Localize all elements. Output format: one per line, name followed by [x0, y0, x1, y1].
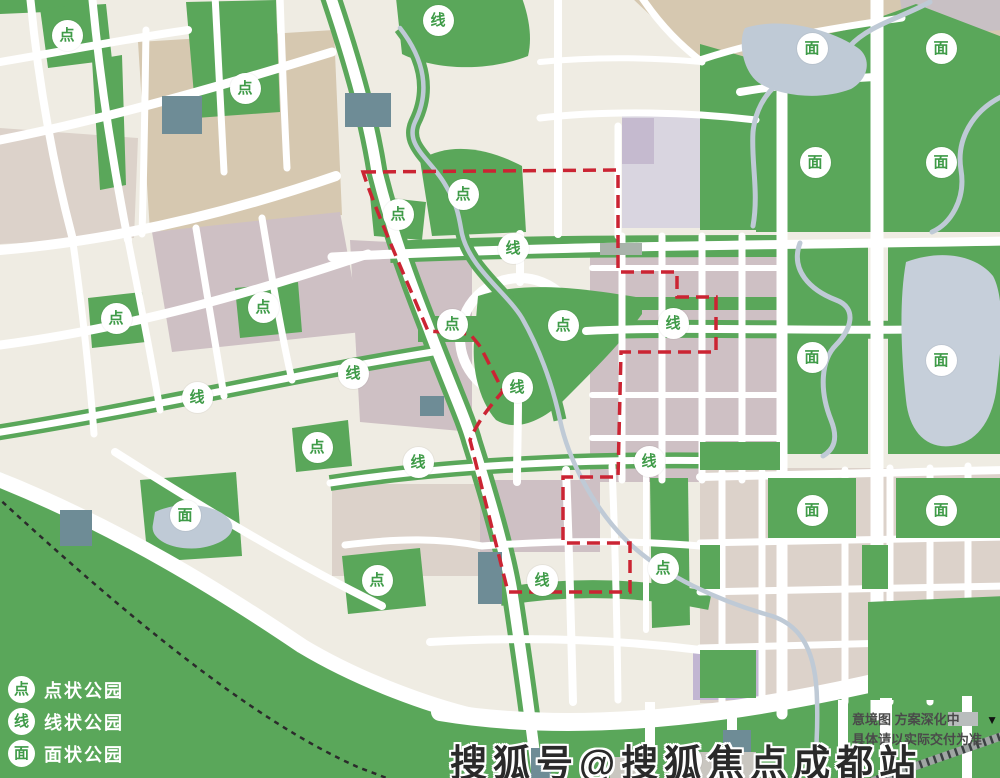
legend-item-area-park: 面 面状公园 — [8, 740, 124, 767]
legend-label: 面状公园 — [44, 741, 124, 767]
dot-park-symbol: 点 — [8, 676, 35, 703]
lake — [901, 255, 1000, 446]
line-park-symbol: 线 — [8, 708, 35, 735]
watermark: 搜狐号@搜狐焦点成都站 — [450, 733, 922, 778]
map-legend: 点 点状公园 线 线状公园 面 面状公园 — [8, 676, 124, 767]
dropdown-arrow-icon: ▼ — [986, 710, 998, 730]
map-canvas — [0, 0, 1000, 778]
planning-map: 点点点点点点点点点点点线线线线线线线线线面面面面面面面面面面 点 点状公园 线 … — [0, 0, 1000, 778]
area-park-symbol: 面 — [8, 740, 35, 767]
legend-item-line-park: 线 线状公园 — [8, 708, 124, 735]
legend-label: 点状公园 — [44, 677, 124, 703]
legend-item-dot-park: 点 点状公园 — [8, 676, 124, 703]
legend-label: 线状公园 — [44, 709, 124, 735]
disclaimer-line1: 意境图 方案深化中 — [852, 710, 960, 730]
